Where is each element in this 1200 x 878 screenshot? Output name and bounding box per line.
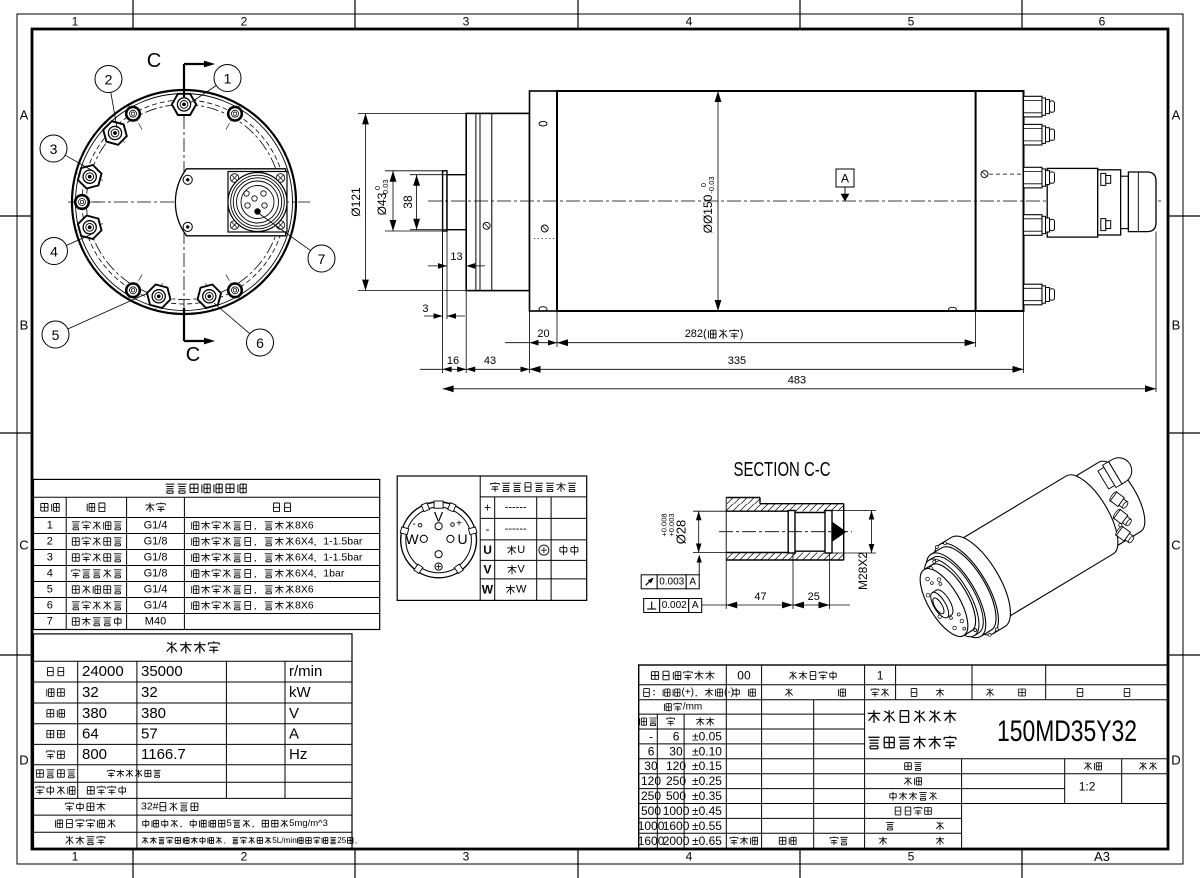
svg-text:/mm: /mm <box>683 702 702 713</box>
svg-text:-: - <box>412 519 415 530</box>
svg-text:47: 47 <box>754 591 766 603</box>
svg-text:1bar: 1bar <box>323 568 345 580</box>
svg-text:-: - <box>649 730 653 744</box>
svg-text:±0.10: ±0.10 <box>692 744 722 758</box>
svg-text:5L/min: 5L/min <box>272 836 297 845</box>
svg-text:5: 5 <box>908 15 915 29</box>
svg-text:D: D <box>1171 753 1180 768</box>
svg-text:00: 00 <box>737 669 751 683</box>
svg-text:B: B <box>20 318 29 333</box>
svg-text:A: A <box>20 108 29 123</box>
svg-text:250: 250 <box>666 774 686 788</box>
svg-text:G1/8: G1/8 <box>144 536 168 548</box>
svg-text:±0.35: ±0.35 <box>692 789 722 803</box>
svg-text:120: 120 <box>641 774 661 788</box>
svg-text:D: D <box>19 753 28 768</box>
svg-text:1600: 1600 <box>663 819 690 833</box>
svg-text:38: 38 <box>401 195 415 209</box>
svg-text:5mg/m^3: 5mg/m^3 <box>289 818 328 829</box>
svg-text:6X4: 6X4 <box>295 552 314 564</box>
svg-text:25: 25 <box>337 836 347 845</box>
svg-text:A: A <box>692 600 699 611</box>
svg-text:): ) <box>740 328 744 340</box>
svg-text:0.003: 0.003 <box>659 576 684 587</box>
svg-text:4: 4 <box>686 15 693 29</box>
svg-text:0.002: 0.002 <box>662 600 687 611</box>
svg-text:2: 2 <box>241 15 248 29</box>
svg-text:1: 1 <box>224 71 232 87</box>
svg-text:C: C <box>19 538 28 553</box>
svg-text:M28X2: M28X2 <box>856 552 870 590</box>
svg-text:32: 32 <box>82 684 99 701</box>
svg-text:-0.03: -0.03 <box>381 179 390 196</box>
svg-text:13: 13 <box>450 251 462 263</box>
svg-text:±0.65: ±0.65 <box>692 834 722 848</box>
svg-text:V: V <box>518 564 526 576</box>
svg-text:4: 4 <box>47 568 53 580</box>
svg-text:64: 64 <box>82 726 99 743</box>
svg-text:30: 30 <box>644 759 658 773</box>
svg-text:5: 5 <box>47 584 53 596</box>
svg-text:1: 1 <box>72 15 79 29</box>
svg-text:2000: 2000 <box>663 834 690 848</box>
svg-text:A3: A3 <box>1094 849 1110 864</box>
svg-text:C: C <box>186 344 200 366</box>
svg-text:W: W <box>405 531 419 547</box>
svg-text:5: 5 <box>52 327 60 343</box>
svg-text:32: 32 <box>141 684 158 701</box>
svg-text:32#: 32# <box>141 801 159 813</box>
svg-text:3: 3 <box>463 15 470 29</box>
svg-text:6: 6 <box>648 744 655 758</box>
svg-text:1:2: 1:2 <box>1079 780 1096 794</box>
svg-text:C: C <box>1171 538 1180 553</box>
svg-text:kW: kW <box>289 684 312 701</box>
svg-text:Hz: Hz <box>289 746 307 763</box>
svg-text:1-1.5bar: 1-1.5bar <box>323 536 363 548</box>
svg-text:±0.25: ±0.25 <box>692 774 722 788</box>
svg-text:7: 7 <box>47 616 53 628</box>
svg-text:8X6: 8X6 <box>295 520 314 532</box>
svg-text:3: 3 <box>50 141 58 157</box>
svg-text:2: 2 <box>241 850 248 864</box>
svg-text:G1/4: G1/4 <box>144 584 168 596</box>
svg-text:57: 57 <box>141 726 158 743</box>
svg-text:1: 1 <box>47 520 53 532</box>
svg-text:1600: 1600 <box>638 834 665 848</box>
svg-text:Ø121: Ø121 <box>349 187 363 217</box>
svg-text:V: V <box>289 705 299 722</box>
svg-text:8X6: 8X6 <box>295 600 314 612</box>
svg-text:C: C <box>147 50 161 72</box>
svg-text:6: 6 <box>256 335 264 351</box>
svg-text:A: A <box>689 576 696 587</box>
svg-text:335: 335 <box>728 355 746 367</box>
svg-text:SECTION C-C: SECTION C-C <box>734 459 831 481</box>
svg-text:8X6: 8X6 <box>295 584 314 596</box>
svg-text:G1/8: G1/8 <box>144 568 168 580</box>
svg-text:1000: 1000 <box>663 804 690 818</box>
svg-text:6: 6 <box>1099 15 1106 29</box>
svg-text:------: ------ <box>505 502 527 514</box>
svg-text:1: 1 <box>877 669 884 683</box>
svg-text:------: ------ <box>505 523 527 535</box>
svg-text:380: 380 <box>141 705 166 722</box>
svg-text:ØØ150: ØØ150 <box>701 194 715 233</box>
svg-text:2: 2 <box>105 72 113 88</box>
svg-text:500: 500 <box>666 789 686 803</box>
svg-text:4: 4 <box>686 850 693 864</box>
svg-text:-0.03: -0.03 <box>707 176 716 193</box>
svg-text:500: 500 <box>641 804 661 818</box>
svg-text:U: U <box>517 544 525 556</box>
svg-text:M40: M40 <box>145 616 166 628</box>
svg-text:V: V <box>434 509 444 525</box>
svg-text:2: 2 <box>47 536 53 548</box>
svg-text:3: 3 <box>463 850 470 864</box>
svg-text:120: 120 <box>666 759 686 773</box>
svg-text:6X4: 6X4 <box>295 536 314 548</box>
svg-text:150MD35Y32: 150MD35Y32 <box>997 715 1137 748</box>
svg-text:43: 43 <box>484 355 496 367</box>
svg-text:G1/4: G1/4 <box>144 600 168 612</box>
svg-text:V: V <box>484 563 492 577</box>
svg-text:+: + <box>484 501 491 515</box>
svg-text:W: W <box>482 583 494 597</box>
svg-text:3: 3 <box>422 303 428 315</box>
svg-text:A: A <box>1172 108 1181 123</box>
svg-text:4: 4 <box>50 244 58 260</box>
svg-text:7: 7 <box>318 251 326 267</box>
svg-text:A: A <box>289 726 299 743</box>
svg-text:380: 380 <box>82 705 107 722</box>
svg-text:W: W <box>516 584 527 596</box>
svg-text:1: 1 <box>72 850 79 864</box>
svg-text:-: - <box>486 522 490 536</box>
svg-text:35000: 35000 <box>141 663 183 680</box>
svg-text:6: 6 <box>673 730 680 744</box>
svg-text:±0.05: ±0.05 <box>692 730 722 744</box>
svg-text:6X4: 6X4 <box>295 568 314 580</box>
svg-text:5: 5 <box>908 850 915 864</box>
svg-text:U: U <box>483 543 492 557</box>
svg-text:±0.45: ±0.45 <box>692 804 722 818</box>
svg-text:G1/4: G1/4 <box>144 520 168 532</box>
svg-text:+: + <box>456 519 462 530</box>
svg-text:1-1.5bar: 1-1.5bar <box>323 552 363 564</box>
svg-text:A: A <box>841 172 849 186</box>
svg-text:16: 16 <box>447 355 459 367</box>
svg-text:(-): (-) <box>724 687 734 698</box>
svg-text:282(: 282( <box>685 328 707 340</box>
svg-text:30: 30 <box>669 744 683 758</box>
svg-text:G1/8: G1/8 <box>144 552 168 564</box>
svg-text:6: 6 <box>47 600 53 612</box>
svg-text:250: 250 <box>641 789 661 803</box>
svg-text:±0.15: ±0.15 <box>692 759 722 773</box>
svg-text:+0.003: +0.003 <box>667 513 676 536</box>
svg-text:1000: 1000 <box>638 819 665 833</box>
svg-text:(+): (+) <box>682 687 695 698</box>
svg-text:±0.55: ±0.55 <box>692 819 722 833</box>
svg-text:B: B <box>1172 318 1181 333</box>
svg-text:483: 483 <box>788 375 806 387</box>
svg-text:20: 20 <box>537 328 549 340</box>
svg-text:3: 3 <box>47 552 53 564</box>
svg-text:U: U <box>457 531 467 547</box>
svg-text:5: 5 <box>227 818 232 829</box>
svg-text:1166.7: 1166.7 <box>141 746 186 763</box>
svg-text:25: 25 <box>808 591 820 603</box>
svg-text:r/min: r/min <box>289 663 322 680</box>
svg-text:24000: 24000 <box>82 663 124 680</box>
svg-text:800: 800 <box>82 746 107 763</box>
